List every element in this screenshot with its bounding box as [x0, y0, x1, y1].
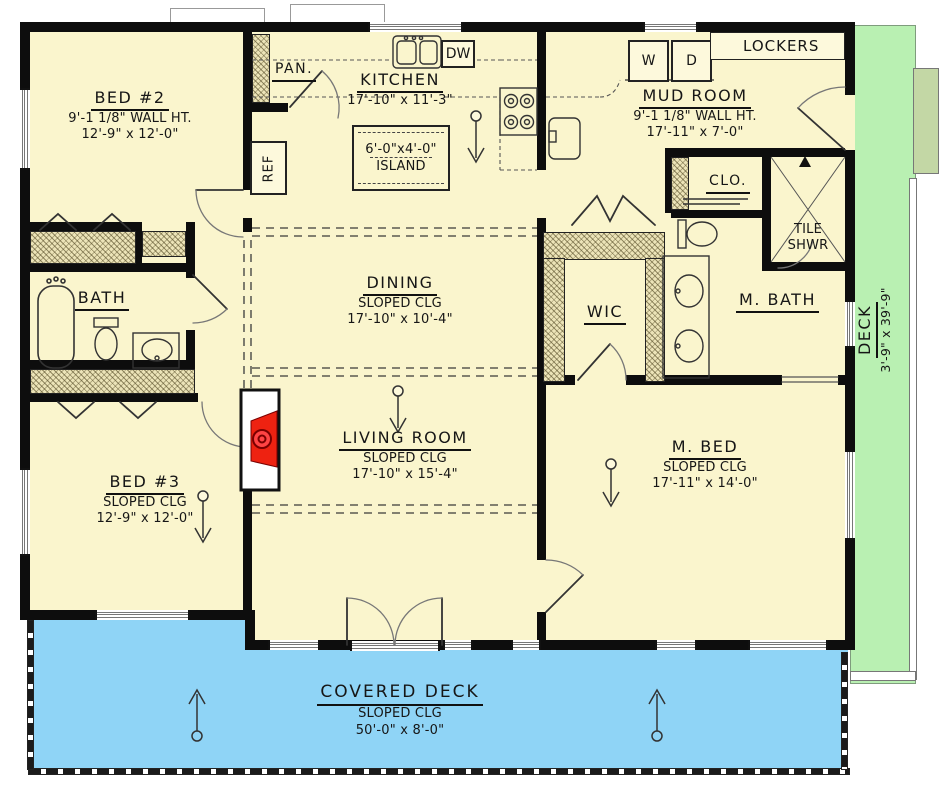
clo-shelves: [683, 199, 748, 204]
deck-slope-arrow-1: [189, 690, 205, 741]
washer: W: [628, 40, 669, 82]
bath-vanity: [133, 333, 179, 368]
hall-double-doors: [572, 196, 655, 225]
room-label-dining: DINING SLOPED CLG 17'-10" x 10'-4": [320, 273, 480, 329]
washer-label: W: [642, 53, 656, 69]
mbath-vanity: [663, 256, 709, 378]
island-dims: 6'-0"x4'-0": [365, 142, 436, 157]
french-door-arc-left: [347, 598, 394, 645]
room-label-deck: DECK 3'-9" x 39'-9": [855, 250, 909, 410]
mudroom-sink: [549, 118, 580, 159]
deck-slope-arrow-2: [649, 690, 665, 741]
mbath-toilet: [678, 220, 717, 248]
dishwasher-label: DW: [446, 46, 471, 62]
living-slope-arrow: [390, 386, 406, 432]
fireplace: [241, 390, 279, 490]
wic-door-arc: [610, 344, 626, 380]
kitchen-slope-arrow: [468, 111, 484, 162]
mudroom-deck-door-leaf: [798, 108, 845, 150]
floor-plan: DW W D LOCKERS REF 6'-0"x4'-0" ISLAND BE…: [0, 0, 945, 800]
mbed-door-arc: [546, 560, 583, 575]
lockers-label: LOCKERS: [740, 37, 822, 55]
stove: [500, 88, 537, 135]
bath-door-leaf: [193, 275, 227, 309]
room-label-bed3: BED #3 SLOPED CLG 12'-9" x 12'-0": [50, 472, 240, 528]
room-label-wic: WIC: [570, 302, 640, 325]
wic-door-leaf: [578, 344, 610, 380]
room-label-bath: BATH: [62, 288, 142, 311]
mbath-cased-opening: [782, 377, 838, 382]
mbed-door-leaf: [546, 575, 583, 612]
refrigerator: REF: [250, 141, 287, 195]
room-label-mbed: M. BED SLOPED CLG 17'-11" x 14'-0": [615, 437, 795, 493]
bed3-bifold-doors: [58, 402, 156, 418]
room-label-mudroom: MUD ROOM 9'-1 1/8" WALL HT. 17'-11" x 7'…: [600, 86, 790, 142]
bed2-bifold-doors: [40, 214, 130, 230]
room-label-covered-deck: COVERED DECK SLOPED CLG 50'-0" x 8'-0": [290, 682, 510, 739]
room-label-pan: PAN.: [266, 58, 322, 82]
kitchen-island: 6'-0"x4'-0" ISLAND: [352, 125, 450, 191]
room-label-bed2: BED #2 9'-1 1/8" WALL HT. 12'-9" x 12'-0…: [45, 88, 215, 144]
island-label: ISLAND: [370, 157, 431, 174]
dryer-label: D: [686, 53, 697, 69]
bath-toilet: [94, 318, 118, 360]
french-door-arc-right: [395, 598, 442, 645]
french-door-leaves: [347, 598, 442, 645]
room-label-living: LIVING ROOM SLOPED CLG 17'-10" x 15'-4": [320, 428, 490, 484]
mudroom-deck-door-arc: [798, 87, 845, 108]
room-label-mbath: M. BATH: [715, 290, 840, 313]
room-label-kitchen: KITCHEN 17'-10" x 11'-3": [330, 70, 470, 109]
dryer: D: [671, 40, 712, 82]
bath-door-arc: [193, 309, 227, 323]
room-label-tile-shwr: TILE SHWR: [777, 222, 839, 255]
room-label-clo: CLO.: [694, 170, 762, 194]
kitchen-sink: [393, 36, 441, 68]
dishwasher: DW: [441, 40, 475, 68]
bed2-door-arc: [196, 190, 243, 237]
refrigerator-label: REF: [261, 154, 276, 182]
